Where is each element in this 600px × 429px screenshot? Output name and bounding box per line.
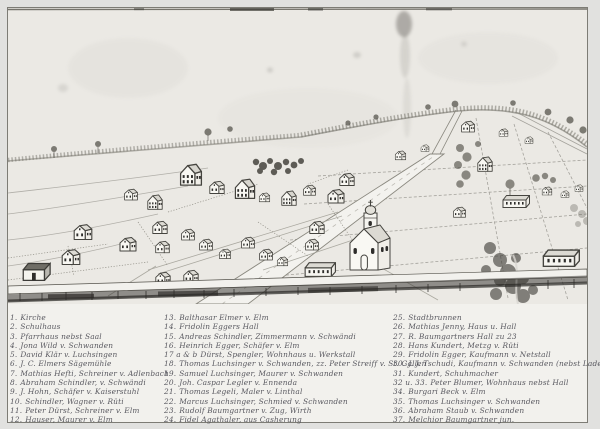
legend-entry-number: 34. [393,387,405,396]
legend-entry-text: J. C. Elmers Sägemühle [20,359,111,368]
legend-entry-text: Thomas Luchsinger v. Schwanden [408,397,540,406]
legend-entry-text: Kundert, Schuhmacher [408,369,498,378]
legend-entry-text: Abraham Schindler, v. Schwändi [20,378,146,387]
legend-entry: 34.Burgari Beck v. Elm [393,387,600,396]
legend-entry: 15.Andreas Schindler, Zimmermann v. Schw… [164,332,427,341]
legend-entry: 28.Hans Kundert, Metzg v. Rüti [393,341,600,350]
legend-entry-text: J. Hohn, Schäfer v. Kaiserstuhl [20,387,139,396]
legend-entry: 8.Abraham Schindler, v. Schwändi [10,378,169,387]
legend-entry: 9.J. Hohn, Schäfer v. Kaiserstuhl [10,387,169,396]
legend-entry-number: 32 u. 33. [393,378,427,387]
legend-entry-number: 26. [393,322,405,331]
legend-entry-text: J. J. Tschudi, Kaufmann v. Schwanden (ne… [408,359,600,368]
legend-entry: 3.Pfarrhaus nebst Saal [10,332,169,341]
legend-entry-number: 18. [164,359,176,368]
legend-entry: 13.Balthasar Elmer v. Elm [164,313,427,322]
legend-entry-text: Fridolin Eggers Hall [179,322,259,331]
legend-entry: 5.David Klär v. Luchsingen [10,350,169,359]
legend-entry-number: 25. [393,313,405,322]
legend-entry: 20.Joh. Caspar Legler v. Ennenda [164,378,427,387]
legend-entry-number: 2. [10,322,17,331]
legend-entry-number: 29. [393,350,405,359]
legend-entry: 19.Samuel Luchsinger, Maurer v. Schwande… [164,369,427,378]
legend-entry-number: 24. [164,415,176,424]
legend-entry-number: 19. [164,369,176,378]
legend-entry-text: Fridolin Egger, Kaufmann v. Netstall [408,350,551,359]
legend-entry-number: 1. [10,313,17,322]
legend-entry-number: 15. [164,332,176,341]
legend-entry-text: Dürst, Spengler, Wohnhaus u. Werkstall [200,350,355,359]
legend-entry: 11.Peter Dürst, Schreiner v. Elm [10,406,169,415]
legend-entry-text: Peter Blumer, Wohnhaus nebst Hall [430,378,568,387]
legend-entry-number: 4. [10,341,17,350]
village-birdseye-drawing [8,8,587,304]
legend-entry-number: 14. [164,322,176,331]
legend-entry-text: Samuel Luchsinger, Maurer v. Schwanden [179,369,343,378]
legend-entry: 36.Abraham Staub v. Schwanden [393,406,600,415]
legend-entry: 35.Thomas Luchsinger v. Schwanden [393,397,600,406]
legend-entry: 18.Thomas Luchsinger v. Schwanden, zz. P… [164,359,427,368]
legend-entry-text: Thomas Legeli, Maler v. Linthal [179,387,302,396]
legend-entry-text: Heinrich Egger, Schäfer v. Elm [179,341,299,350]
legend-entry-number: 16. [164,341,176,350]
legend-entry-text: Hans Kundert, Metzg v. Rüti [408,341,519,350]
legend-entry: 14.Fridolin Eggers Hall [164,322,427,331]
legend-entry-number: 21. [164,387,176,396]
legend-entry-text: Mathias Jenny, Haus u. Hall [408,322,516,331]
legend-entry: 12.Hauser, Maurer v. Elm [10,415,169,424]
photograph: 1.Kirche2.Schulhaus3.Pfarrhaus nebst Saa… [0,0,600,429]
legend-entry-text: Balthasar Elmer v. Elm [179,313,269,322]
legend-entry: 2.Schulhaus [10,322,169,331]
legend-entry: 6.J. C. Elmers Sägemühle [10,359,169,368]
legend-entry-number: 36. [393,406,405,415]
legend-entry-text: Burgari Beck v. Elm [408,387,486,396]
legend-entry: 22.Marcus Luchsinger, Schmied v. Schwand… [164,397,427,406]
legend-entry-text: Fidel Agathaler, aus Casherung [179,415,302,424]
legend-entry-text: Schulhaus [20,322,60,331]
legend-entry-text: R. Baumgartners Hall zu 23 [408,332,517,341]
legend-entry: 21.Thomas Legeli, Maler v. Linthal [164,387,427,396]
legend-entry-text: David Klär v. Luchsingen [20,350,117,359]
legend-column-3: 25.Stadtbrunnen26.Mathias Jenny, Haus u.… [393,313,600,425]
legend-entry-text: Stadtbrunnen [408,313,462,322]
legend-entry: 1.Kirche [10,313,169,322]
legend-entry-number: 27. [393,332,405,341]
shed-icon [23,264,50,281]
legend-entry: 23.Rudolf Baumgartner v. Zug, Wirth [164,406,427,415]
legend-entry: 10.Schindler, Wagner v. Rüti [10,397,169,406]
legend-entry-number: 11. [10,406,22,415]
legend-entry: 7.Mathias Hefti, Schreiner v. Adlenbach [10,369,169,378]
legend-entry-number: 20. [164,378,176,387]
legend-entry: 16.Heinrich Egger, Schäfer v. Elm [164,341,427,350]
legend: 1.Kirche2.Schulhaus3.Pfarrhaus nebst Saa… [8,304,587,422]
legend-entry-text: Melchior Baumgartner jun. [408,415,514,424]
legend-entry-number: 23. [164,406,176,415]
legend-entry: 37.Melchior Baumgartner jun. [393,415,600,424]
legend-entry-number: 12. [10,415,22,424]
legend-entry-text: Kirche [20,313,46,322]
legend-entry-number: 28. [393,341,405,350]
legend-entry-number: 30. [393,359,405,368]
legend-entry-text: Mathias Hefti, Schreiner v. Adlenbach [20,369,169,378]
legend-entry-number: 6. [10,359,17,368]
legend-entry-number: 22. [164,397,176,406]
legend-column-2: 13.Balthasar Elmer v. Elm14.Fridolin Egg… [164,313,427,425]
legend-entry-number: 13. [164,313,176,322]
legend-entry-number: 5. [10,350,17,359]
legend-entry-number: 17 a & b [164,350,197,359]
legend-entry: 29.Fridolin Egger, Kaufmann v. Netstall [393,350,600,359]
legend-entry: 25.Stadtbrunnen [393,313,600,322]
legend-entry: 27.R. Baumgartners Hall zu 23 [393,332,600,341]
legend-entry-text: Andreas Schindler, Zimmermann v. Schwänd… [179,332,356,341]
legend-entry-number: 7. [10,369,17,378]
drawing-frame: 1.Kirche2.Schulhaus3.Pfarrhaus nebst Saa… [7,7,588,423]
legend-column-1: 1.Kirche2.Schulhaus3.Pfarrhaus nebst Saa… [10,313,169,425]
legend-entry-number: 35. [393,397,405,406]
legend-entry-number: 10. [10,397,22,406]
legend-entry-number: 9. [10,387,17,396]
legend-entry: 30.J. J. Tschudi, Kaufmann v. Schwanden … [393,359,600,368]
barn-icon [503,196,530,208]
legend-entry-text: Thomas Luchsinger v. Schwanden, zz. Pete… [179,359,426,368]
legend-entry-text: Schindler, Wagner v. Rüti [25,397,123,406]
legend-entry: 24.Fidel Agathaler, aus Casherung [164,415,427,424]
legend-entry: 31.Kundert, Schuhmacher [393,369,600,378]
legend-entry-number: 37. [393,415,405,424]
legend-entry-text: Hauser, Maurer v. Elm [25,415,113,424]
legend-entry-number: 8. [10,378,17,387]
legend-entry-text: Jona Wild v. Schwanden [20,341,113,350]
legend-entry-text: Peter Dürst, Schreiner v. Elm [25,406,139,415]
legend-entry: 4.Jona Wild v. Schwanden [10,341,169,350]
legend-entry-number: 3. [10,332,17,341]
legend-entry-text: Marcus Luchsinger, Schmied v. Schwanden [179,397,348,406]
legend-entry-text: Pfarrhaus nebst Saal [20,332,101,341]
legend-entry-text: Rudolf Baumgartner v. Zug, Wirth [179,406,311,415]
legend-entry-text: Joh. Caspar Legler v. Ennenda [179,378,297,387]
legend-entry: 17 a & bDürst, Spengler, Wohnhaus u. Wer… [164,350,427,359]
legend-entry-text: Abraham Staub v. Schwanden [408,406,524,415]
legend-entry: 26.Mathias Jenny, Haus u. Hall [393,322,600,331]
barn-icon [305,263,335,277]
legend-entry-number: 31. [393,369,405,378]
barn-icon [543,250,579,266]
legend-entry: 32 u. 33.Peter Blumer, Wohnhaus nebst Ha… [393,378,600,387]
